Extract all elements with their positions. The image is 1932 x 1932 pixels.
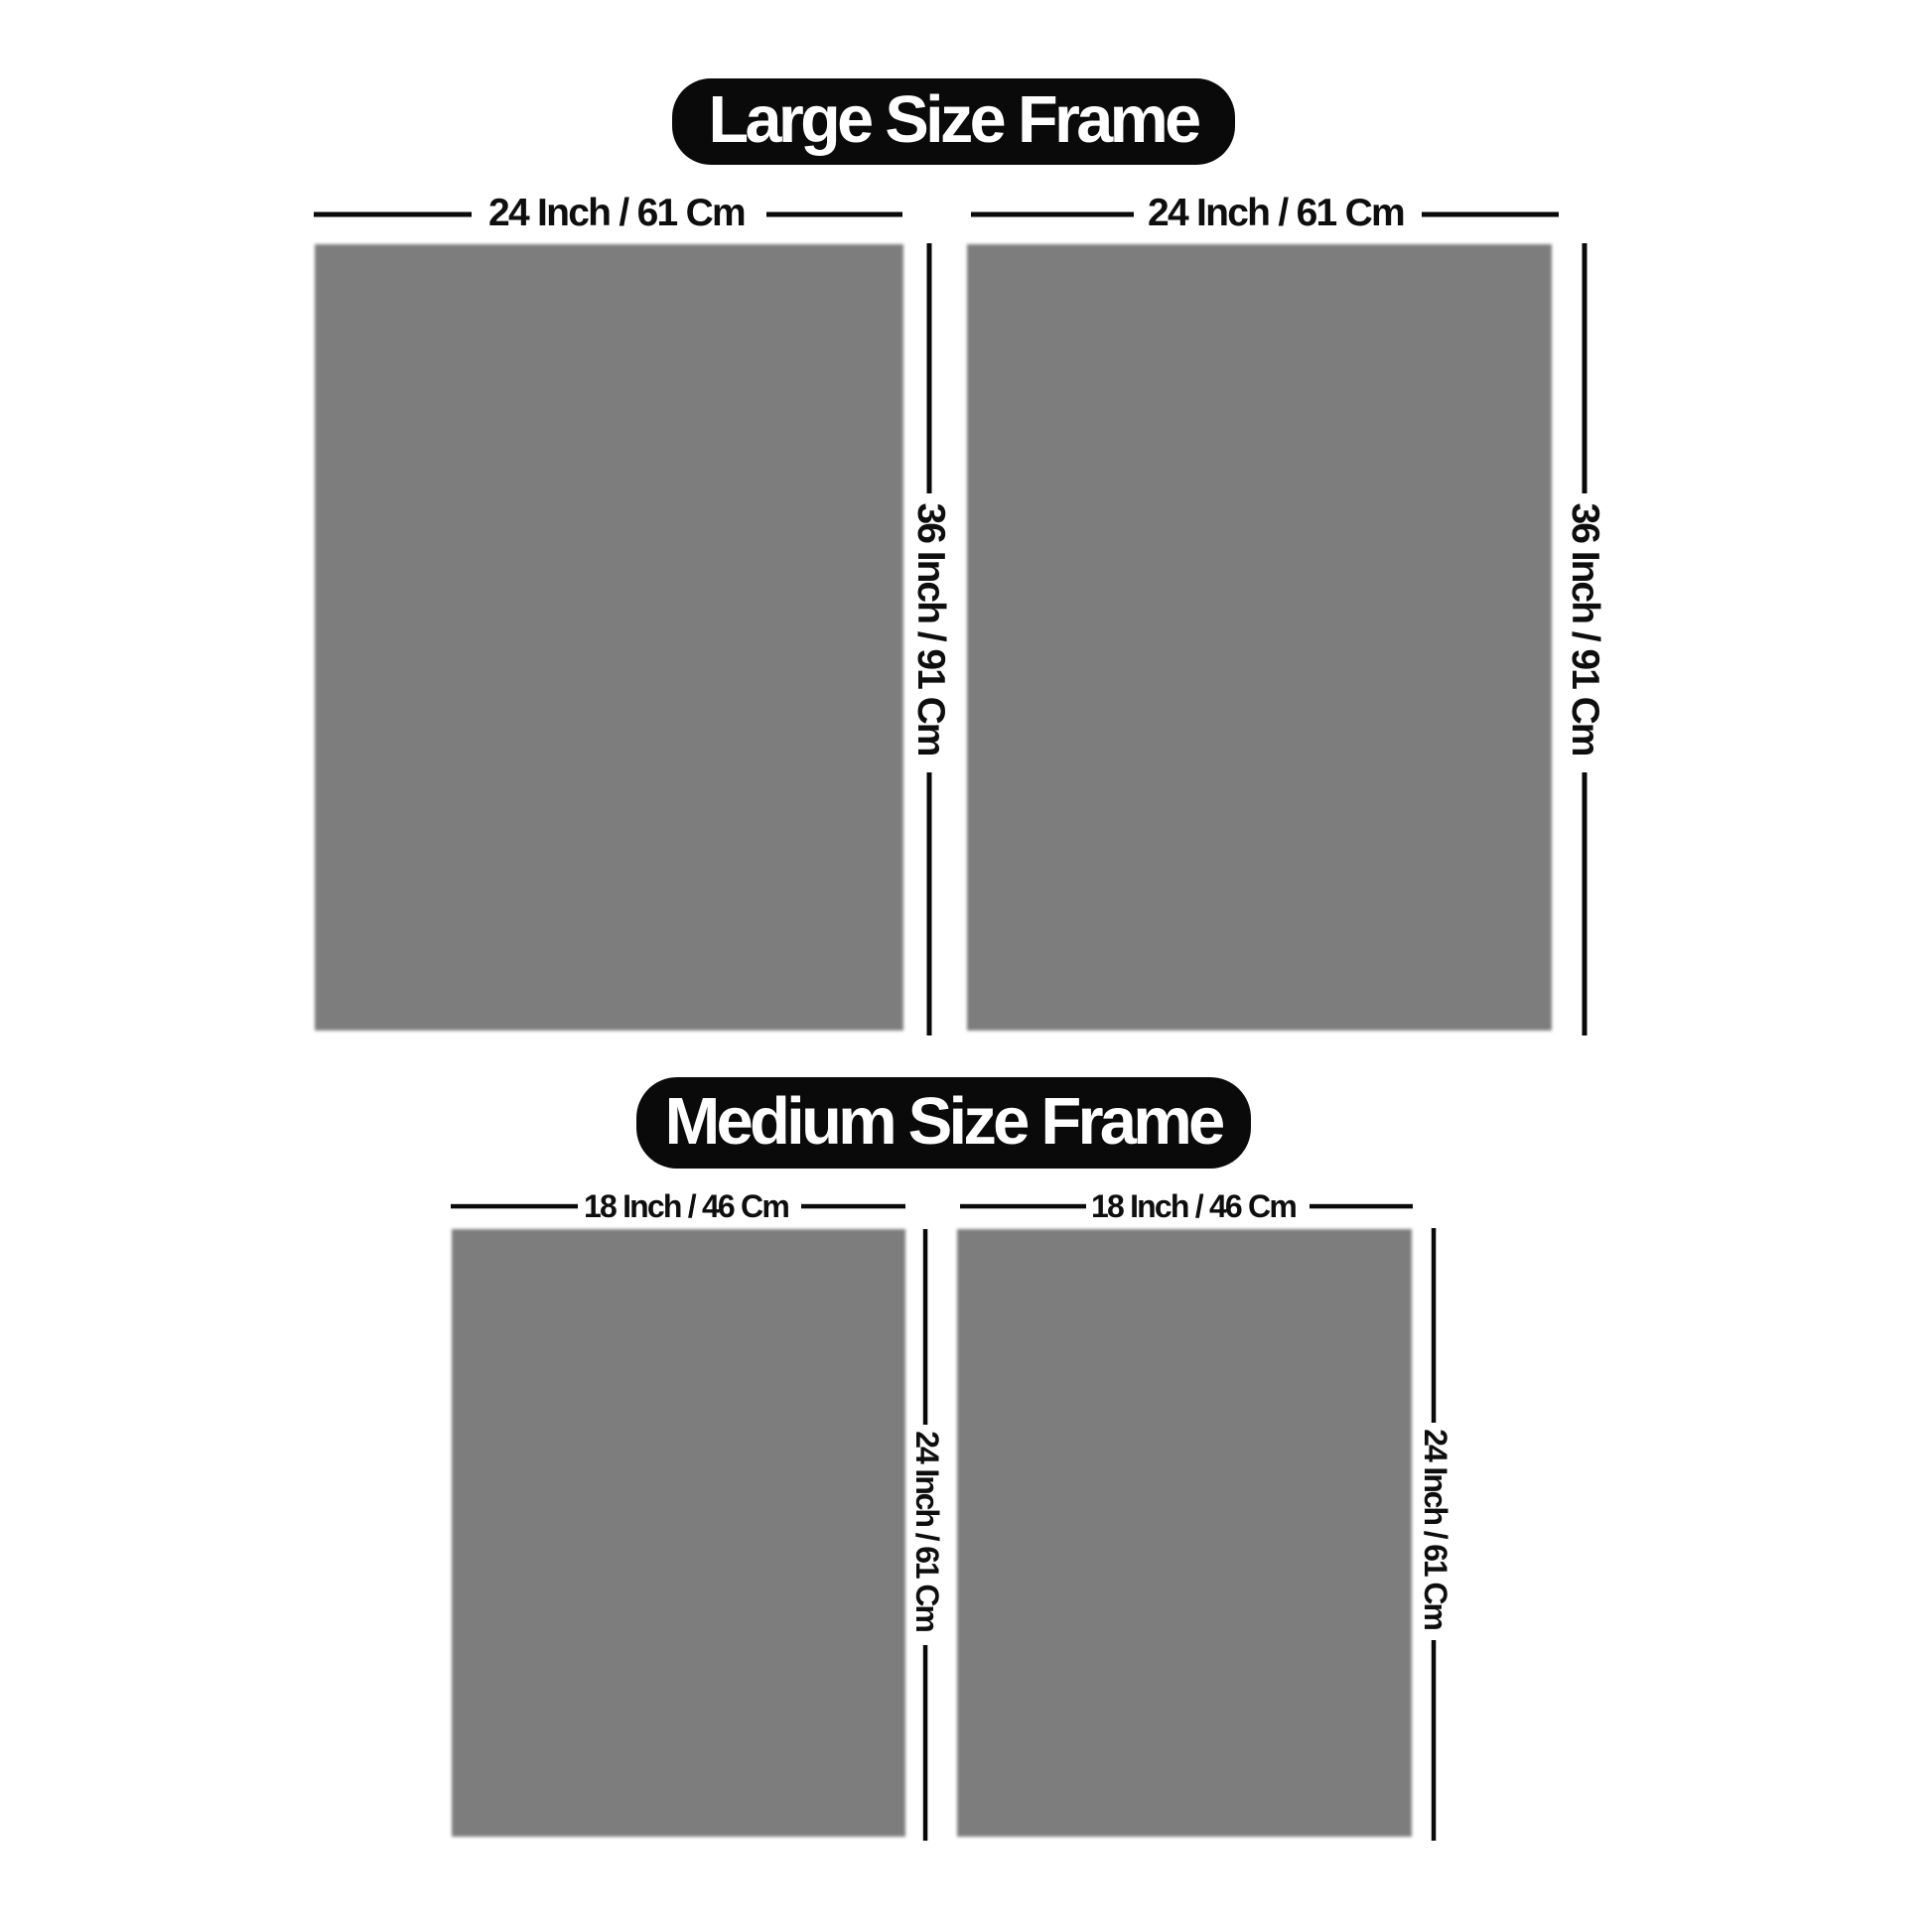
svg-text:18 Inch / 46 Cm: 18 Inch / 46 Cm (584, 1188, 788, 1224)
svg-text:36 Inch / 91 Cm: 36 Inch / 91 Cm (1564, 503, 1606, 756)
svg-text:Large Size Frame: Large Size Frame (708, 83, 1199, 157)
svg-text:24 Inch / 61 Cm: 24 Inch / 61 Cm (488, 192, 745, 234)
svg-text:36 Inch / 91 Cm: 36 Inch / 91 Cm (909, 503, 952, 756)
svg-text:24 Inch / 61 Cm: 24 Inch / 61 Cm (1418, 1429, 1453, 1629)
svg-text:18 Inch / 46 Cm: 18 Inch / 46 Cm (1091, 1188, 1296, 1224)
svg-text:Medium Size Frame: Medium Size Frame (665, 1084, 1223, 1159)
svg-text:24 Inch / 61 Cm: 24 Inch / 61 Cm (909, 1431, 945, 1631)
svg-text:24 Inch / 61 Cm: 24 Inch / 61 Cm (1148, 192, 1404, 234)
